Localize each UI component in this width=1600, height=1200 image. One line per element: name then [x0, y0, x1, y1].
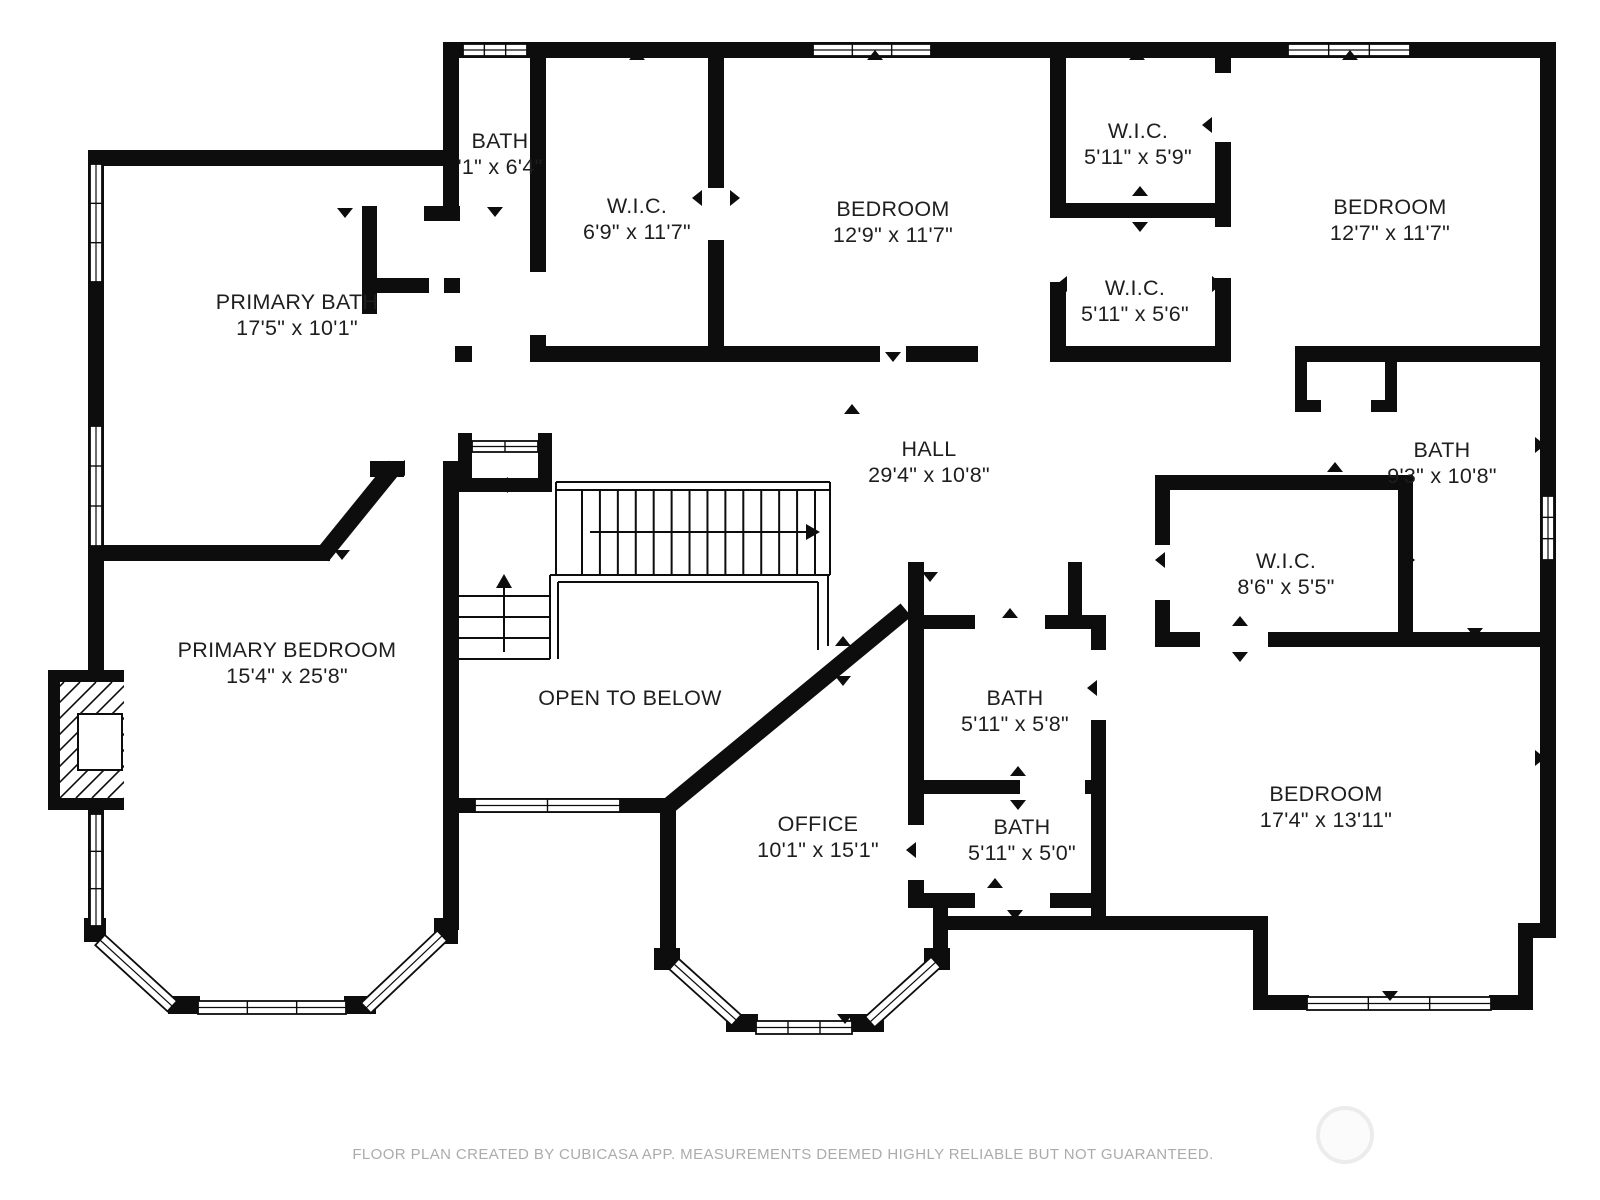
wall: [1155, 490, 1170, 545]
chimney-hatch-line: [156, 682, 272, 798]
wall: [1540, 42, 1556, 938]
door-marker: [1327, 462, 1343, 472]
door-marker: [337, 208, 353, 218]
stair-arrow-head: [806, 524, 820, 540]
door-marker: [1132, 222, 1148, 232]
wall: [1050, 58, 1066, 218]
wall-diagonal: [666, 610, 906, 808]
door-marker: [487, 207, 503, 217]
wall: [455, 346, 472, 362]
bay-window: [95, 935, 177, 1012]
wall: [906, 346, 978, 362]
door-marker: [844, 404, 860, 414]
bay-window-center-line: [366, 936, 442, 1008]
wall: [1050, 203, 1231, 218]
wall: [1155, 475, 1413, 490]
chimney-firebox: [78, 714, 122, 770]
wall: [1518, 930, 1533, 1010]
door-marker: [1087, 680, 1097, 696]
wall: [1050, 282, 1066, 362]
wall: [708, 58, 724, 188]
wall: [530, 42, 546, 272]
wall: [1091, 720, 1106, 905]
door-marker: [906, 842, 916, 858]
stair-arrow-head: [496, 574, 512, 588]
floor-plan-page: BATH'1" x 6'4"W.I.C.6'9" x 11'7"BEDROOM1…: [0, 0, 1600, 1200]
chimney-hatch-line: [0, 682, 48, 798]
door-marker: [1002, 608, 1018, 618]
wall: [948, 916, 1268, 930]
wall: [724, 346, 880, 362]
chimney-hatch-line: [204, 682, 320, 798]
wall: [1068, 562, 1082, 615]
wall: [444, 278, 460, 293]
door-marker: [835, 676, 851, 686]
door-marker: [1232, 652, 1248, 662]
door-marker: [1202, 117, 1212, 133]
floor-plan-canvas: [0, 0, 1600, 1200]
wall: [1215, 58, 1231, 73]
door-marker: [1155, 552, 1165, 568]
door-marker: [1010, 766, 1026, 776]
wall: [1155, 632, 1200, 647]
wall: [1091, 615, 1106, 650]
wall: [924, 780, 1020, 794]
door-marker: [835, 636, 851, 646]
wall: [1091, 893, 1106, 930]
chimney-hatch-line: [172, 682, 288, 798]
chimney-hatch-line: [124, 682, 240, 798]
door-marker: [922, 572, 938, 582]
watermark-circle: [1316, 1106, 1374, 1164]
wall: [1085, 780, 1106, 794]
bay-window: [361, 931, 447, 1013]
bay-window-center-line: [100, 940, 172, 1006]
wall: [1215, 278, 1231, 362]
wall: [1295, 400, 1321, 412]
bay-window-center-line: [674, 964, 736, 1020]
wall: [530, 346, 710, 362]
bay-window-center-line: [870, 962, 936, 1022]
wall: [1518, 923, 1556, 938]
door-marker: [1132, 186, 1148, 196]
door-marker: [692, 190, 702, 206]
door-marker: [730, 190, 740, 206]
door-marker: [1010, 800, 1026, 810]
wall: [377, 278, 429, 293]
wall: [1413, 632, 1545, 647]
chimney-hatch-line: [140, 682, 256, 798]
wall: [1253, 995, 1309, 1010]
wall: [424, 206, 460, 221]
door-marker: [885, 352, 901, 362]
wall: [104, 545, 330, 561]
bay-window: [865, 957, 940, 1027]
wall: [660, 798, 676, 958]
wall: [88, 150, 458, 166]
door-marker: [1232, 616, 1248, 626]
wall: [908, 562, 924, 825]
wall: [1371, 400, 1397, 412]
wall: [443, 42, 459, 214]
wall: [924, 615, 975, 629]
chimney-hatch-line: [108, 682, 224, 798]
door-marker: [334, 550, 350, 560]
wall: [362, 206, 377, 314]
chimney-hatch-line: [188, 682, 304, 798]
wall-diagonal: [322, 466, 395, 556]
wall: [1045, 615, 1091, 629]
door-marker: [987, 878, 1003, 888]
wall: [443, 461, 459, 930]
bay-window: [669, 959, 741, 1026]
wall: [708, 240, 724, 362]
wall: [1295, 346, 1545, 362]
